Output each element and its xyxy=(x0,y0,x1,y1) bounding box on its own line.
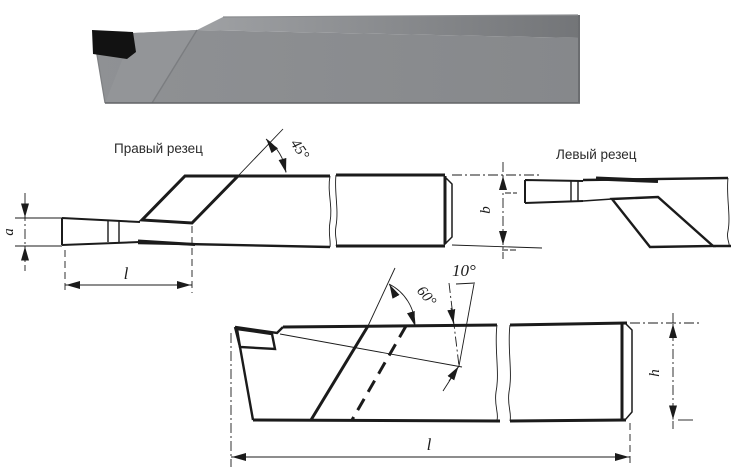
body-bottom-edge xyxy=(138,243,330,247)
break-line-left xyxy=(496,325,498,420)
dim-l-top-extension-lines xyxy=(65,226,192,293)
left-cutter-caption: Левый резец xyxy=(556,147,637,162)
body-right-piece-edges xyxy=(336,175,445,246)
cutting-edge-projection-line xyxy=(280,334,462,367)
break-line xyxy=(727,178,729,246)
angle-10-arrow-up xyxy=(449,367,459,382)
angle-45-label: 45° xyxy=(287,137,312,163)
bottom-edge xyxy=(253,420,626,421)
break-line-right xyxy=(509,325,511,421)
dim-a-label: a xyxy=(1,228,17,236)
dim-l-bottom-label: l xyxy=(427,435,432,454)
tongue-to-face-line xyxy=(583,199,612,201)
dim-l-top-label: l xyxy=(124,264,129,283)
tongue-divider-lines xyxy=(108,220,119,242)
left-cutter-plan-view xyxy=(502,178,731,250)
top-edge xyxy=(283,323,627,327)
cutting-edge-thick xyxy=(596,179,658,182)
dim-b-label: b xyxy=(478,206,494,214)
front-clearance-edge xyxy=(235,327,253,420)
angle-60-extension-line xyxy=(368,268,395,326)
tongue-divider-lines xyxy=(571,181,578,201)
slanted-face xyxy=(142,176,238,223)
cutter-side-view: 60° 10° h l xyxy=(231,261,701,467)
angle-60-label: 60° xyxy=(413,283,439,309)
angle-10-label: 10° xyxy=(452,261,476,280)
break-line-left xyxy=(329,176,331,247)
slanted-face xyxy=(612,197,713,247)
body-end-chamfer xyxy=(625,323,632,420)
dim-b-extension-bottom xyxy=(452,245,542,248)
tongue-outline xyxy=(62,218,140,245)
figure-canvas: Правый резец Левый резец 45° a xyxy=(0,0,739,473)
carbide-insert xyxy=(92,30,136,59)
angle-10-slant-line xyxy=(443,284,474,391)
dim-a-extension-lines xyxy=(15,218,62,246)
dim-h-label: h xyxy=(647,369,663,377)
angle-45-extension-line xyxy=(238,129,283,176)
tongue-outline xyxy=(525,180,583,203)
tool-3d-render xyxy=(92,15,580,103)
break-line-right xyxy=(335,175,337,246)
right-cutter-caption: Правый резец xyxy=(114,141,203,156)
angle-10-shelf-line xyxy=(456,283,475,284)
cutter-diagram: Правый резец Левый резец 45° a xyxy=(0,0,739,473)
